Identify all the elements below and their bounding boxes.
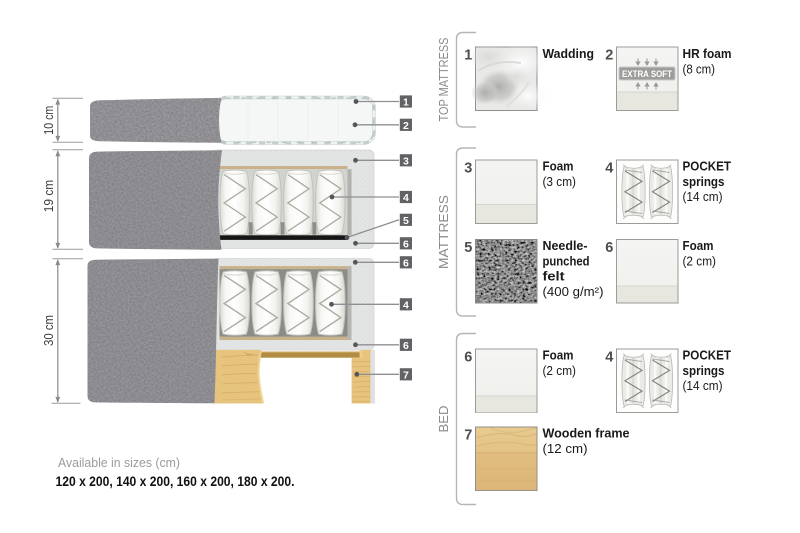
- svg-text:Wadding: Wadding: [543, 46, 595, 61]
- svg-text:5: 5: [403, 215, 409, 227]
- svg-text:2: 2: [403, 120, 409, 132]
- svg-text:6: 6: [403, 258, 409, 270]
- svg-text:MATTRESS: MATTRESS: [437, 195, 451, 269]
- svg-text:Foam: Foam: [543, 348, 574, 363]
- svg-text:6: 6: [605, 240, 613, 256]
- svg-text:POCKET: POCKET: [683, 348, 732, 363]
- svg-text:(14 cm): (14 cm): [683, 189, 723, 204]
- svg-text:3: 3: [403, 156, 409, 168]
- svg-text:6: 6: [403, 340, 409, 352]
- svg-text:(3 cm): (3 cm): [543, 174, 577, 189]
- svg-text:3: 3: [464, 161, 472, 177]
- svg-text:(2 cm): (2 cm): [683, 253, 717, 268]
- svg-text:Foam: Foam: [543, 159, 574, 174]
- svg-text:Foam: Foam: [683, 238, 714, 253]
- svg-text:(12 cm): (12 cm): [543, 441, 588, 456]
- svg-text:(2 cm): (2 cm): [543, 363, 577, 378]
- svg-text:springs: springs: [683, 174, 725, 189]
- svg-text:POCKET: POCKET: [683, 159, 732, 174]
- svg-text:5: 5: [464, 240, 472, 256]
- svg-text:punched: punched: [543, 253, 590, 268]
- svg-text:(400 g/m²): (400 g/m²): [543, 284, 604, 299]
- svg-text:7: 7: [464, 428, 472, 444]
- svg-text:7: 7: [403, 370, 409, 382]
- svg-text:felt: felt: [543, 269, 566, 284]
- svg-text:1: 1: [403, 97, 409, 109]
- svg-text:120 x 200, 140 x 200, 160 x 20: 120 x 200, 140 x 200, 160 x 200, 180 x 2…: [56, 474, 295, 489]
- svg-text:TOP MATTRESS: TOP MATTRESS: [437, 38, 451, 122]
- svg-text:Available in sizes (cm): Available in sizes (cm): [58, 455, 180, 470]
- svg-text:4: 4: [403, 192, 409, 204]
- svg-text:4: 4: [605, 350, 613, 366]
- svg-text:4: 4: [403, 300, 409, 312]
- svg-text:6: 6: [464, 350, 472, 366]
- svg-text:BED: BED: [437, 406, 451, 433]
- svg-text:Needle-: Needle-: [543, 238, 588, 253]
- svg-text:6: 6: [403, 239, 409, 251]
- svg-text:(14 cm): (14 cm): [683, 378, 723, 393]
- svg-text:2: 2: [605, 48, 613, 64]
- svg-text:(8 cm): (8 cm): [683, 61, 716, 76]
- svg-text:19 cm: 19 cm: [42, 180, 56, 213]
- svg-text:springs: springs: [683, 363, 725, 378]
- svg-text:Wooden frame: Wooden frame: [543, 426, 630, 441]
- svg-text:30 cm: 30 cm: [42, 315, 56, 346]
- svg-text:4: 4: [605, 161, 613, 177]
- svg-text:HR foam: HR foam: [683, 46, 732, 61]
- svg-text:EXTRA SOFT: EXTRA SOFT: [622, 69, 672, 80]
- svg-text:10 cm: 10 cm: [42, 106, 56, 135]
